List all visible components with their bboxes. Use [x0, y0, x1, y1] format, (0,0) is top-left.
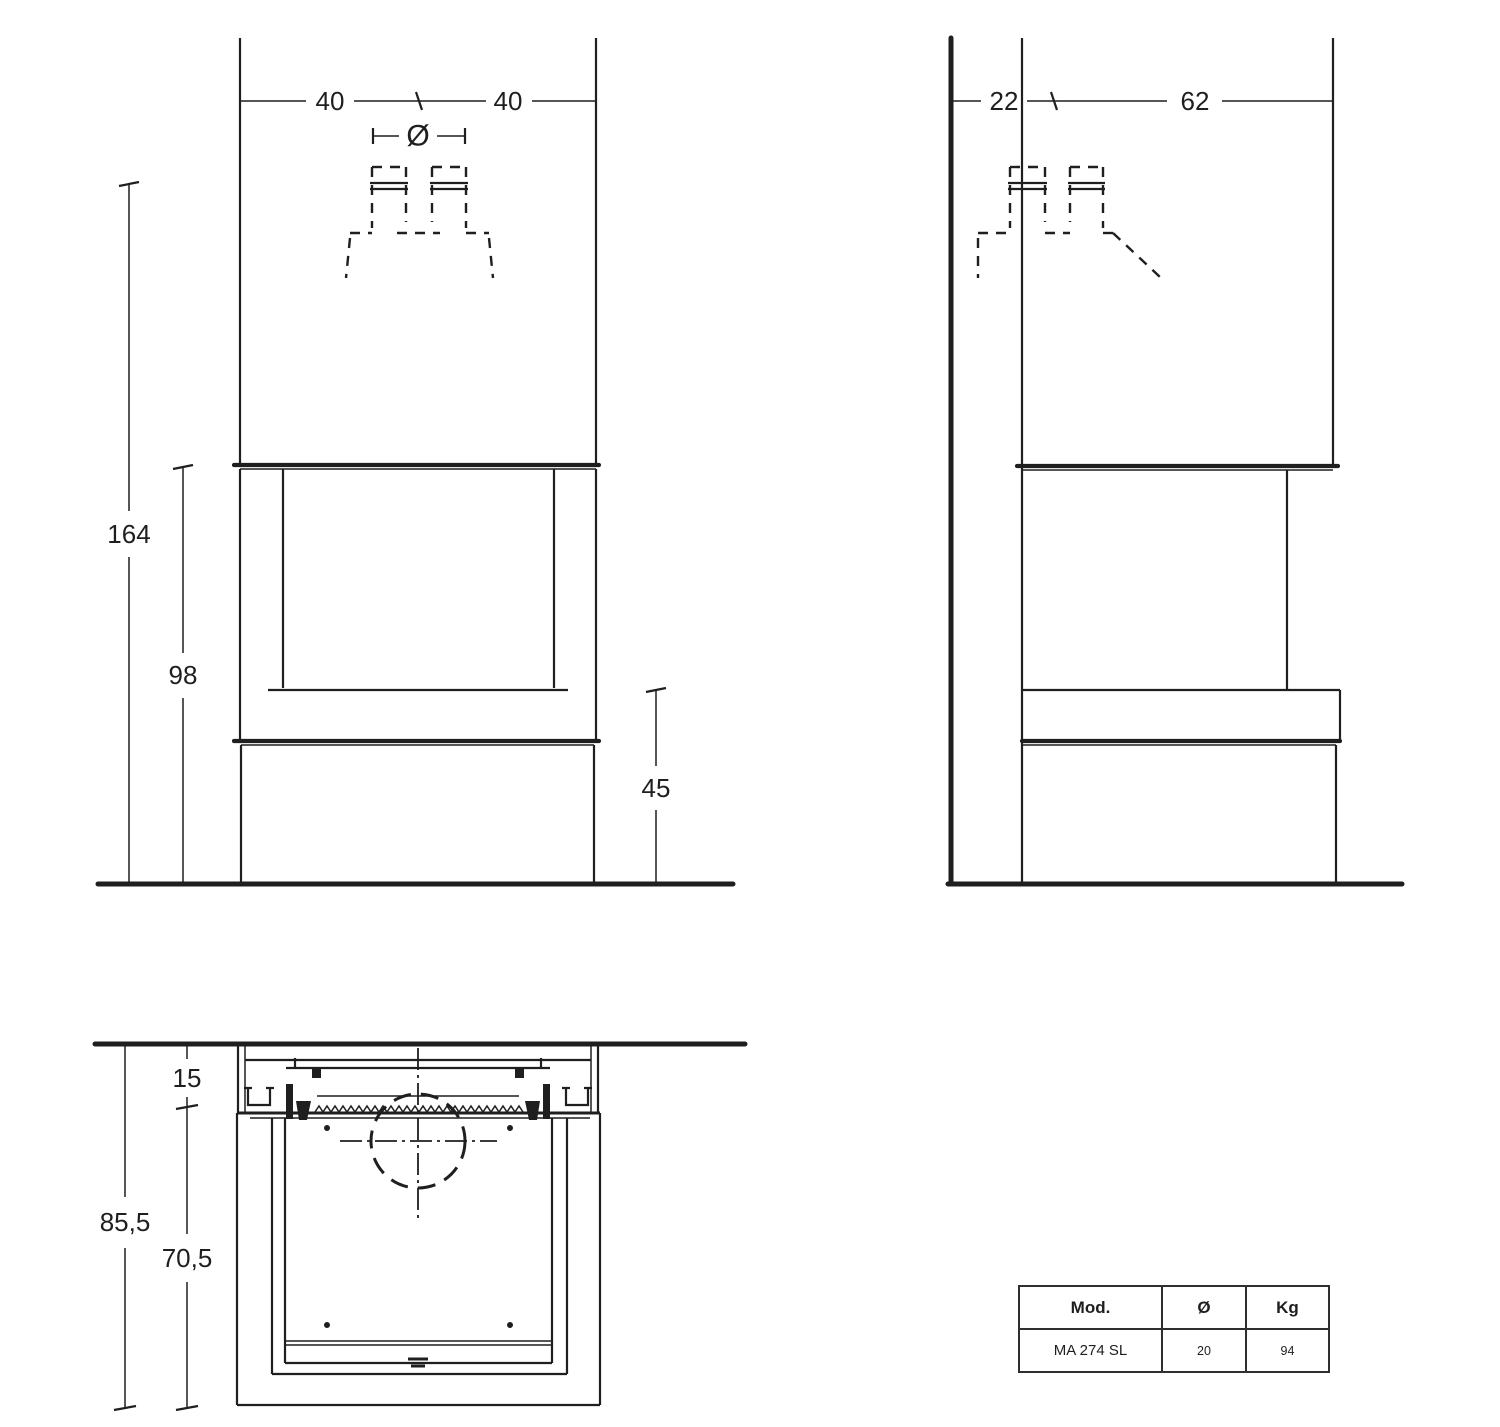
front-elevation-view: 40 40 Ø — [98, 38, 733, 884]
technical-drawing-canvas: 40 40 Ø — [0, 0, 1500, 1427]
front-firebox — [240, 469, 596, 742]
plan-base-outline — [272, 1118, 567, 1374]
fireplace-technical-drawing-page: 40 40 Ø — [0, 0, 1500, 1427]
front-flue-outline — [346, 167, 493, 278]
dimension-label-body-depth: 70,5 — [162, 1243, 213, 1273]
plan-insulation-zigzag — [315, 1106, 523, 1112]
spec-table-value-weight: 94 — [1247, 1330, 1328, 1371]
dimension-label-front-depth: 62 — [1181, 86, 1210, 116]
spec-table-header-diameter: Ø — [1163, 1287, 1247, 1330]
plan-firebox-body — [285, 1110, 552, 1366]
side-section-view: 22 62 — [948, 38, 1402, 884]
plan-offset-depth-dimension: 15 70,5 — [162, 1044, 213, 1410]
front-width-dimension: 40 40 — [240, 86, 596, 116]
side-depth-dimension: 22 62 — [951, 86, 1333, 116]
spec-table-value-model: MA 274 SL — [1020, 1330, 1163, 1371]
spec-table-value-diameter: 20 — [1163, 1330, 1247, 1371]
side-flue-outline — [978, 167, 1160, 278]
front-flue-diameter-dimension: Ø — [373, 120, 465, 153]
dimension-label-total-height: 164 — [107, 519, 150, 549]
dimension-label-wall-offset: 15 — [173, 1063, 202, 1093]
dimension-label-rear-depth: 22 — [990, 86, 1019, 116]
side-bench — [1022, 690, 1340, 745]
dimension-label-flue-diameter: Ø — [406, 120, 429, 153]
front-bench-height-dimension: 45 — [642, 688, 671, 884]
dimension-label-bench-height: 45 — [642, 773, 671, 803]
dimension-label-opening-height: 98 — [169, 660, 198, 690]
plan-section-view: 85,5 15 70,5 — [95, 1044, 745, 1410]
plan-total-depth-dimension: 85,5 — [100, 1044, 151, 1410]
dimension-label-front-width-left: 40 — [316, 86, 345, 116]
front-opening-height-dimension: 98 — [169, 465, 198, 884]
dimension-label-total-depth: 85,5 — [100, 1207, 151, 1237]
front-base — [241, 745, 594, 883]
spec-table-header-model: Mod. — [1020, 1287, 1163, 1330]
spec-table-header-weight: Kg — [1247, 1287, 1328, 1330]
spec-table: Mod. Ø Kg MA 274 SL 20 94 — [1018, 1285, 1330, 1373]
dimension-label-front-width-right: 40 — [494, 86, 523, 116]
plan-flue-circle — [340, 1048, 497, 1218]
front-total-height-dimension: 164 — [107, 182, 150, 884]
